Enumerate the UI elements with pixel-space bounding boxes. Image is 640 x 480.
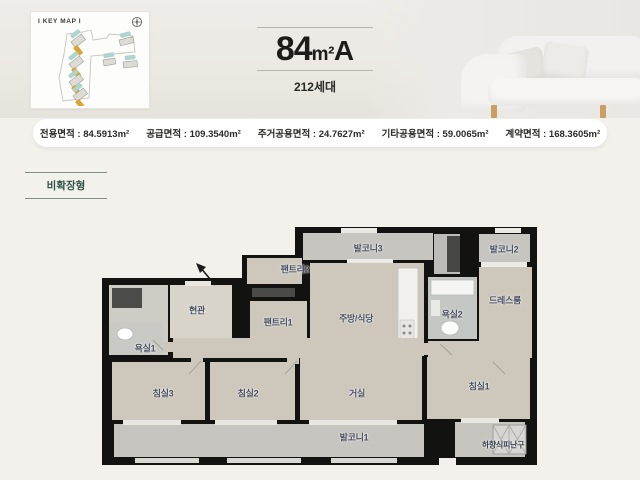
stat-exclusive-area: 전용면적 : 84.5913m² [40, 126, 129, 140]
stat-supply-area: 공급면적 : 109.3540m² [146, 126, 241, 140]
window [495, 228, 521, 233]
label-entry: 현관 [189, 304, 205, 317]
toilet [117, 328, 133, 340]
label-balcony3: 발코니3 [354, 242, 383, 255]
floor-plan: 발코니3 발코니2 팬트리2 현관 팬트리1 주방/식당 욕실2 드레스룸 욕실… [95, 222, 545, 468]
households-count: 212세대 [245, 78, 385, 95]
keymap-title: I KEY MAP I [38, 18, 81, 25]
stove [400, 320, 414, 340]
area-stats-bar: 전용면적 : 84.5913m² 공급면적 : 109.3540m² 주거공용면… [33, 119, 607, 147]
room-living [300, 340, 422, 420]
burner [403, 332, 406, 335]
outer-window-row [135, 458, 397, 463]
floorplan-page: I KEY MAP I [0, 0, 640, 480]
label-escape-hatch: 하향식피난구 [482, 440, 524, 451]
sofa-pillow [541, 41, 590, 83]
title-rule-bottom [257, 70, 373, 71]
exterior-opening [439, 458, 456, 465]
label-balcony2: 발코니2 [490, 243, 519, 256]
title-rule-top [257, 27, 373, 28]
closet-block [252, 288, 295, 297]
sofa-seat [488, 78, 640, 106]
unit-type-letter: A [334, 35, 354, 66]
label-pantry1: 팬트리1 [264, 316, 293, 329]
hero-banner: I KEY MAP I [0, 0, 640, 118]
label-dressroom: 드레스룸 [489, 294, 521, 307]
stat-contract-area: 계약면적 : 168.3605m² [506, 126, 601, 140]
door-opening [163, 342, 175, 352]
hallway [428, 341, 528, 357]
window [481, 262, 527, 267]
burner [409, 332, 412, 335]
bathtub [431, 280, 474, 295]
label-pantry2: 팬트리2 [281, 263, 310, 276]
unit-area-number: 84 [276, 30, 312, 68]
label-bedroom1: 침실1 [469, 380, 490, 393]
duct-block [447, 236, 460, 272]
non-expanded-type-badge[interactable]: 비확장형 [25, 172, 107, 199]
burner [403, 325, 406, 328]
label-balcony1: 발코니1 [340, 431, 369, 444]
room-balcony1 [114, 424, 424, 457]
label-living: 거실 [349, 387, 365, 400]
label-bath2: 욕실2 [442, 308, 463, 321]
unit-area-suffix: m² [312, 44, 334, 65]
toilet [441, 321, 459, 335]
keymap-building [102, 52, 116, 66]
stat-other-common-area: 기타공용면적 : 59.0065m² [382, 126, 489, 140]
label-kitchen: 주방/식당 [339, 312, 373, 325]
entry-door-opening [185, 281, 211, 286]
label-bath1: 욕실1 [135, 342, 156, 355]
sofa-leg [600, 105, 606, 118]
stat-residential-common-area: 주거공용면적 : 24.7627m² [258, 126, 365, 140]
closet-block [112, 288, 142, 308]
sink [431, 300, 440, 316]
window [341, 228, 377, 233]
label-bedroom2: 침실2 [238, 387, 259, 400]
keymap-card: I KEY MAP I [30, 11, 150, 109]
floor-plan-drawing [95, 222, 545, 468]
sofa [461, 36, 640, 118]
unit-title: 84m²A [245, 30, 385, 69]
unit-title-block: 84m²A 212세대 [245, 27, 385, 95]
burner [409, 325, 412, 328]
label-bedroom3: 침실3 [153, 387, 174, 400]
sofa-leg [491, 105, 497, 118]
keymap-site-plan [31, 26, 149, 106]
interior-photo [370, 0, 640, 118]
keymap-building [122, 55, 137, 68]
